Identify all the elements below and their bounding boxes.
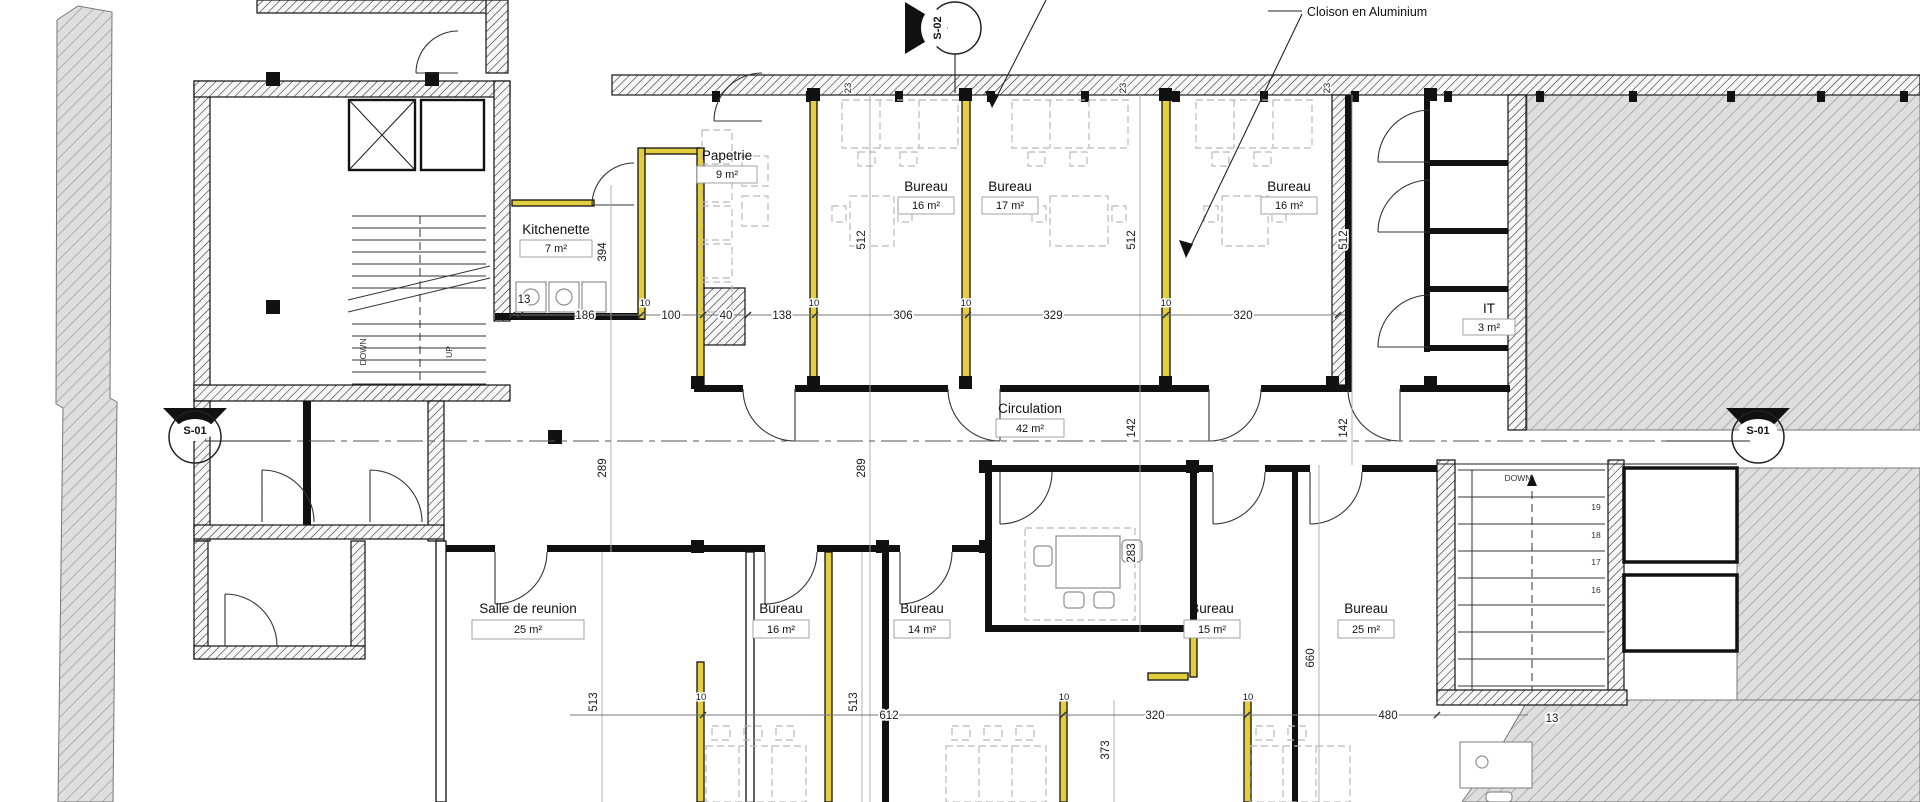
- dim-100: 100: [661, 310, 680, 322]
- svg-text:16 m²: 16 m²: [1275, 200, 1303, 212]
- dim-513b: 513: [848, 692, 860, 711]
- dim-512a: 512: [856, 230, 868, 249]
- svg-text:Bureau: Bureau: [900, 601, 944, 616]
- desk-cluster: [1196, 100, 1312, 166]
- dim-23a: 23: [843, 83, 854, 94]
- svg-text:Bureau: Bureau: [904, 179, 948, 194]
- svg-text:Bureau: Bureau: [1344, 601, 1388, 616]
- dim-10c: 10: [961, 298, 972, 309]
- svg-text:16 m²: 16 m²: [767, 624, 795, 636]
- svg-text:3 m²: 3 m²: [1478, 322, 1500, 334]
- dim-513a: 513: [588, 692, 600, 711]
- room-label-papetrie: Papetrie 9 m²: [697, 148, 757, 183]
- dim-480: 480: [1378, 710, 1397, 722]
- room-label-bureau-bottom-4: Bureau 25 m²: [1338, 601, 1394, 638]
- hatched-regions: [56, 6, 1920, 802]
- svg-text:14 m²: 14 m²: [908, 624, 936, 636]
- elevator-shafts: [349, 100, 484, 170]
- svg-text:Papetrie: Papetrie: [702, 148, 752, 163]
- dim-23b: 23: [1118, 83, 1129, 94]
- dim-512c: 512: [1338, 230, 1350, 249]
- room-label-circulation: Circulation 42 m²: [996, 401, 1064, 437]
- dim-10a: 10: [640, 298, 651, 309]
- svg-text:16 m²: 16 m²: [912, 200, 940, 212]
- floor-plan-drawing: DOWN UP DOWN 19 18 17 16: [0, 0, 1920, 802]
- svg-text:IT: IT: [1483, 301, 1495, 316]
- s02-label: S-02: [932, 16, 944, 39]
- svg-text:15 m²: 15 m²: [1198, 624, 1226, 636]
- right-staircase: DOWN 19 18 17 16: [1458, 470, 1605, 690]
- svg-text:Bureau: Bureau: [988, 179, 1032, 194]
- dim-138: 138: [772, 310, 791, 322]
- cloison-label: Cloison en Aluminium: [1307, 5, 1427, 19]
- floor-plan-canvas: DOWN UP DOWN 19 18 17 16: [0, 0, 1920, 802]
- dim-373: 373: [1100, 740, 1112, 759]
- dim-612: 612: [879, 710, 898, 722]
- room-label-bureau-bottom-2: Bureau 14 m²: [894, 601, 950, 638]
- dim-13: 13: [518, 294, 531, 306]
- s01-left-label: S-01: [183, 425, 206, 437]
- dim-186: 186: [575, 310, 594, 322]
- dim-13b: 13: [1546, 713, 1559, 725]
- svg-text:9 m²: 9 m²: [716, 169, 738, 181]
- dim-142b: 142: [1338, 418, 1350, 437]
- svg-text:7 m²: 7 m²: [545, 243, 567, 255]
- svg-text:Bureau: Bureau: [1267, 179, 1311, 194]
- room-label-salle-de-reunion: Salle de reunion 25 m²: [472, 601, 584, 639]
- cloison-annotation: Cloison en Aluminium: [985, 0, 1427, 258]
- dim-283: 283: [1126, 543, 1138, 562]
- room-label-bureau-top-1: Bureau 16 m²: [898, 179, 954, 214]
- dim-10e: 10: [696, 692, 707, 703]
- room-label-bureau-top-2: Bureau 17 m²: [982, 179, 1038, 214]
- room-labels: Papetrie 9 m² Kitchenette 7 m² Bureau 16…: [472, 148, 1515, 639]
- svg-text:Bureau: Bureau: [1190, 601, 1234, 616]
- svg-text:Circulation: Circulation: [998, 401, 1062, 416]
- room-label-bureau-bottom-1: Bureau 16 m²: [753, 601, 809, 638]
- dim-142a: 142: [1126, 418, 1138, 437]
- stair-tread-16: 16: [1591, 585, 1601, 595]
- dim-320b: 320: [1145, 710, 1164, 722]
- desk-cluster: [842, 100, 958, 166]
- left-staircase: DOWN UP: [348, 216, 490, 384]
- dim-329: 329: [1043, 310, 1062, 322]
- left-stair-down-label: DOWN: [358, 339, 368, 366]
- dim-40: 40: [720, 310, 733, 322]
- dim-289a: 289: [597, 458, 609, 477]
- dim-660: 660: [1305, 648, 1317, 667]
- svg-text:Bureau: Bureau: [759, 601, 803, 616]
- dim-10g: 10: [1243, 692, 1254, 703]
- svg-text:Kitchenette: Kitchenette: [522, 222, 590, 237]
- dim-320: 320: [1233, 310, 1252, 322]
- svg-text:17 m²: 17 m²: [996, 200, 1024, 212]
- dim-10f: 10: [1059, 692, 1070, 703]
- dim-394: 394: [597, 242, 609, 262]
- dim-306: 306: [893, 310, 912, 322]
- room-label-kitchenette: Kitchenette 7 m²: [520, 222, 592, 257]
- dim-289b: 289: [856, 458, 868, 477]
- stair-tread-18: 18: [1591, 530, 1601, 540]
- room-label-it: IT 3 m²: [1463, 301, 1515, 335]
- dim-10b: 10: [809, 298, 820, 309]
- svg-text:25 m²: 25 m²: [514, 624, 542, 636]
- right-side-rooms: [1437, 464, 1737, 651]
- dim-512b: 512: [1126, 230, 1138, 249]
- left-stair-up-label: UP: [444, 346, 454, 358]
- svg-text:25 m²: 25 m²: [1352, 624, 1380, 636]
- stair-tread-17: 17: [1591, 557, 1601, 567]
- desk-cluster: [1012, 100, 1128, 166]
- section-marker-s01-left: S-01: [163, 408, 290, 463]
- room-label-bureau-top-3: Bureau 16 m²: [1261, 179, 1317, 214]
- stair-tread-19: 19: [1591, 502, 1601, 512]
- svg-text:42 m²: 42 m²: [1016, 423, 1044, 435]
- s01-right-label: S-01: [1746, 425, 1769, 437]
- dim-10d: 10: [1161, 298, 1172, 309]
- dim-23c: 23: [1322, 83, 1333, 94]
- svg-text:Salle de reunion: Salle de reunion: [479, 601, 577, 616]
- right-stair-down-label: DOWN: [1505, 473, 1532, 483]
